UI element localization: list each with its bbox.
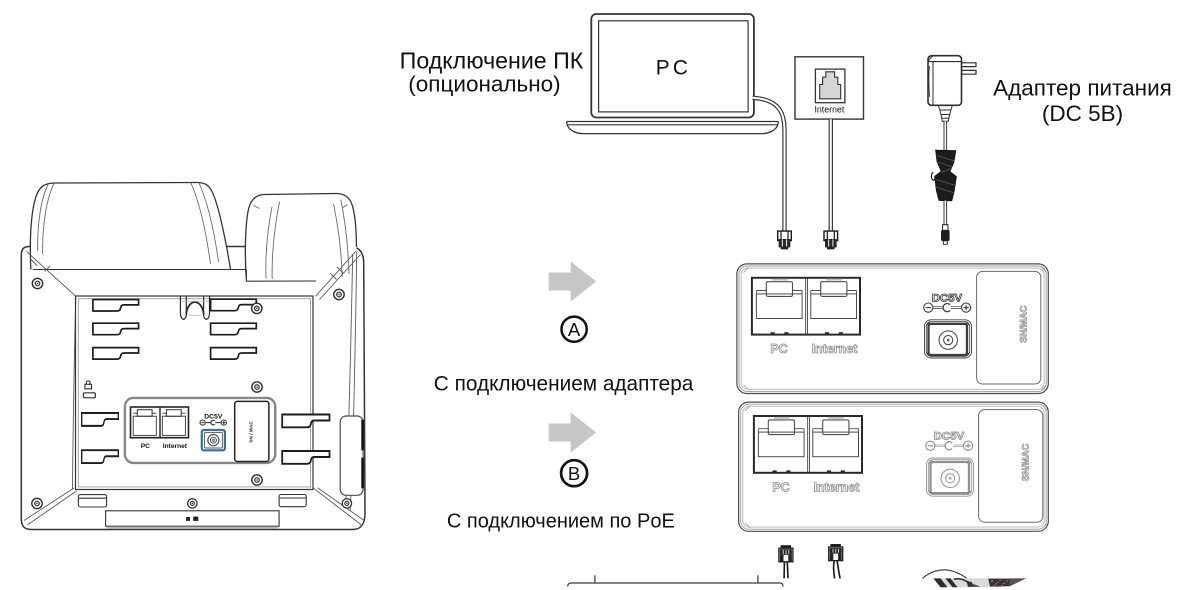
svg-text:SN / MAC: SN / MAC	[248, 421, 254, 443]
svg-text:DC5V: DC5V	[934, 431, 965, 443]
svg-text:PC: PC	[772, 480, 789, 494]
svg-text:DC5V: DC5V	[932, 292, 963, 304]
svg-text:PC: PC	[656, 56, 691, 79]
svg-text:A: A	[568, 319, 581, 340]
svg-text:Internet: Internet	[814, 480, 861, 494]
svg-text:Internet: Internet	[812, 342, 859, 356]
svg-text:DC5V: DC5V	[204, 414, 223, 421]
svg-text:PC: PC	[770, 342, 787, 356]
svg-text:SN/MAC: SN/MAC	[1019, 305, 1030, 343]
svg-text:С подключением адаптера: С подключением адаптера	[434, 373, 694, 396]
svg-text:Internet: Internet	[814, 104, 844, 114]
svg-text:Подключение ПК: Подключение ПК	[400, 47, 584, 73]
svg-text:(DC 5В): (DC 5В)	[1042, 101, 1123, 126]
svg-text:(опционально): (опционально)	[408, 72, 560, 97]
svg-text:Адаптер питания: Адаптер питания	[993, 75, 1172, 100]
svg-text:С подключением по PoE: С подключением по PoE	[447, 511, 675, 533]
svg-text:SN/MAC: SN/MAC	[1021, 444, 1032, 482]
svg-text:PC: PC	[141, 443, 150, 450]
svg-text:B: B	[568, 463, 580, 484]
svg-text:Internet: Internet	[163, 443, 188, 450]
